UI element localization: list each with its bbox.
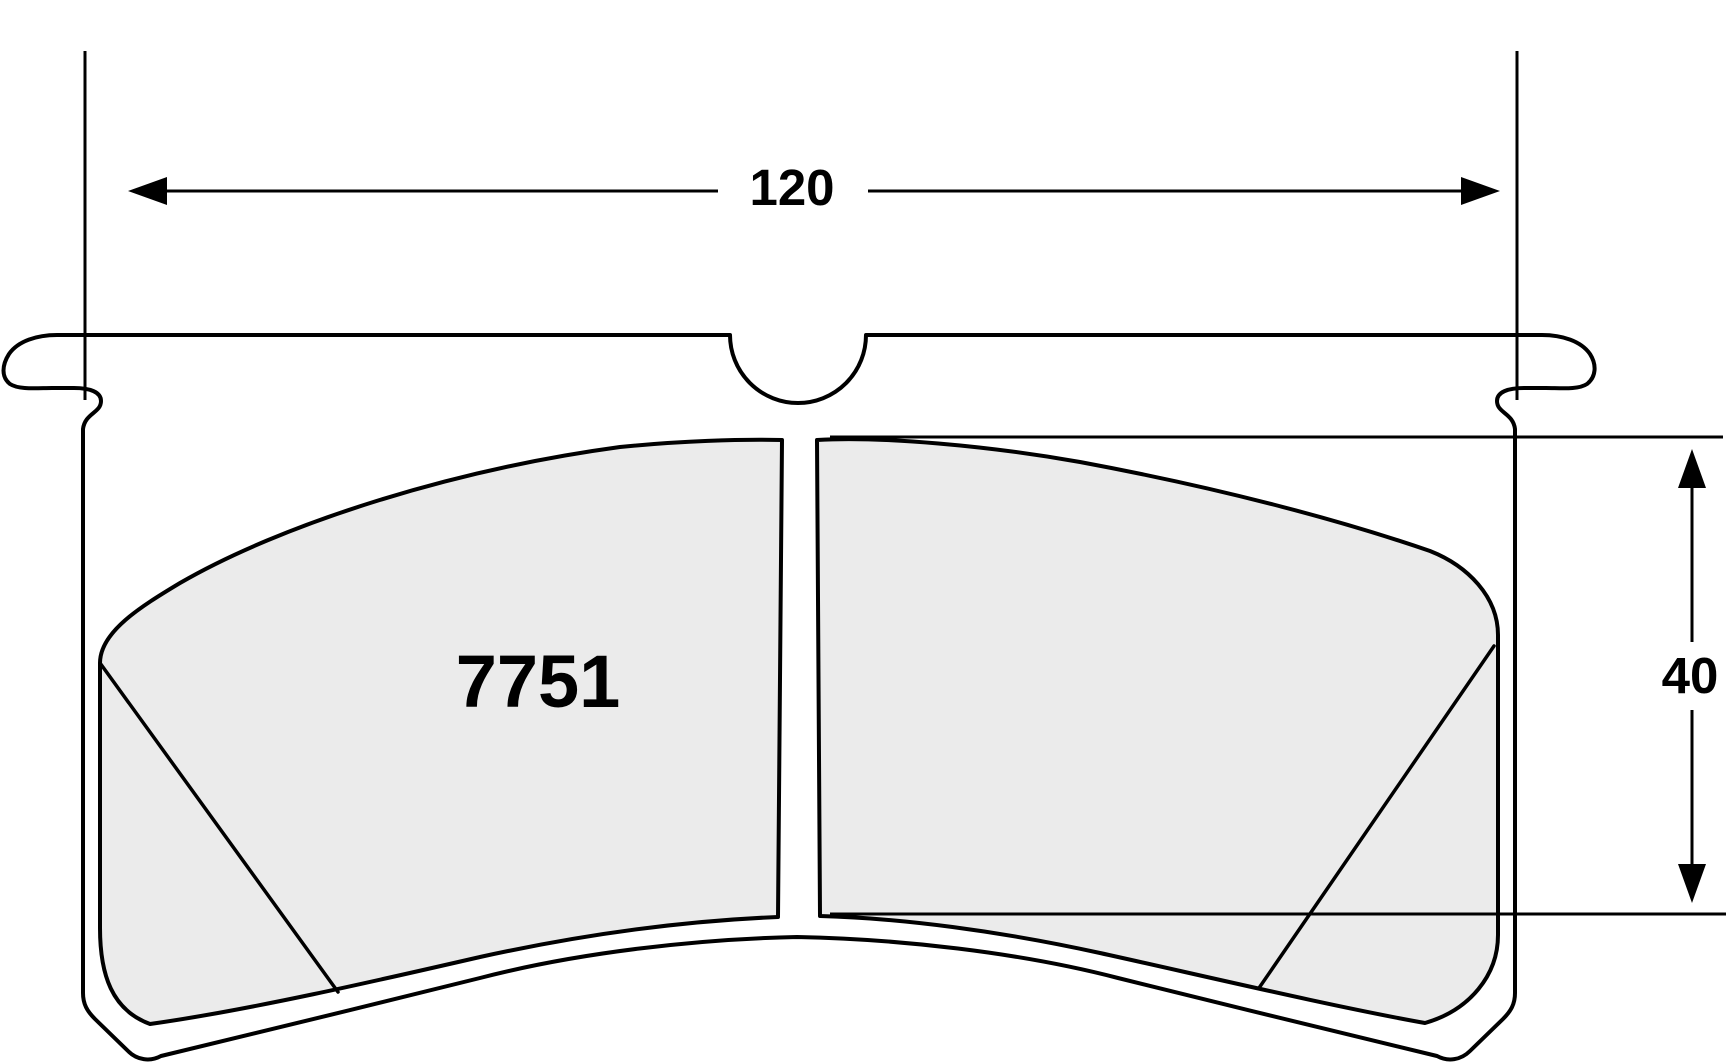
width-dimension-label: 120: [749, 159, 834, 216]
part-number-label: 7751: [456, 640, 621, 723]
diagram-canvas: 120 40 7751: [0, 0, 1735, 1064]
height-arrowhead-down-icon: [1678, 864, 1706, 903]
height-dimension-label: 40: [1662, 647, 1719, 704]
height-arrowhead-up-icon: [1678, 449, 1706, 488]
width-arrowhead-right-icon: [1461, 177, 1500, 205]
brake-pad-drawing: 120 40 7751: [0, 0, 1735, 1064]
width-arrowhead-left-icon: [128, 177, 167, 205]
